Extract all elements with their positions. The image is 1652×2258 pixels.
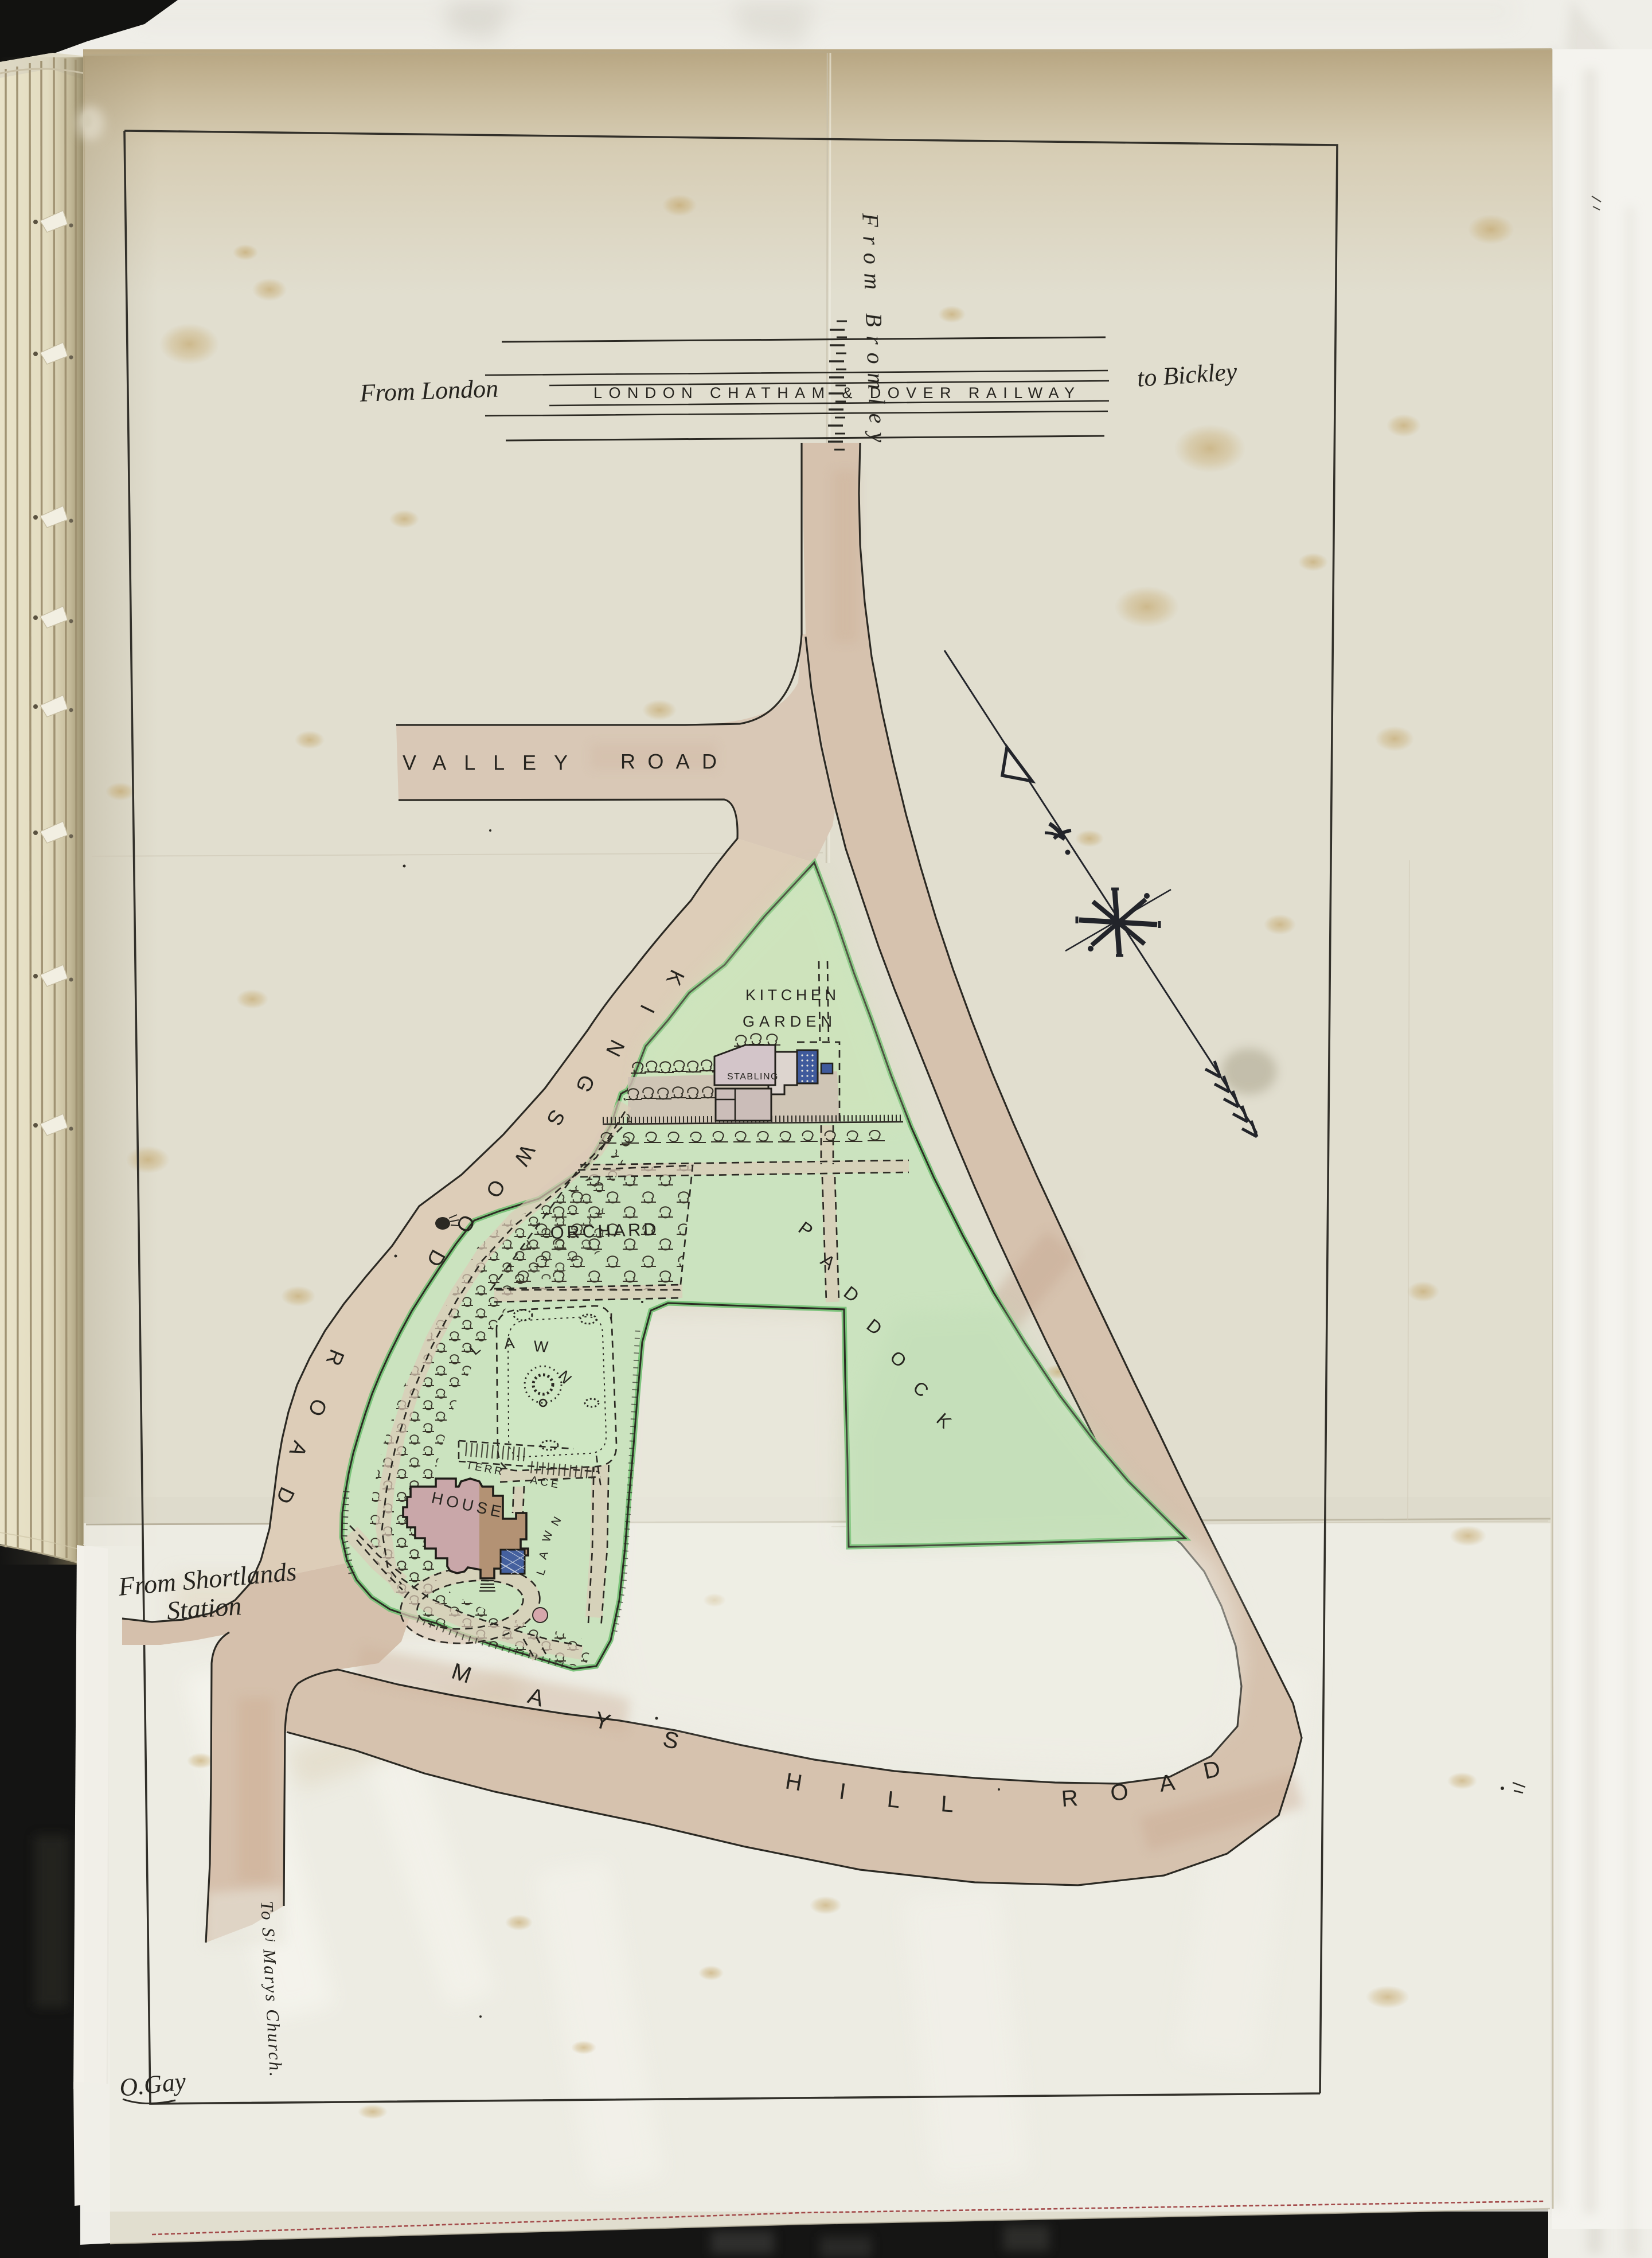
svg-text:O: O — [1109, 1779, 1130, 1806]
svg-text:ORCHARD: ORCHARD — [550, 1219, 663, 1243]
svg-text:From London: From London — [359, 375, 499, 407]
svg-text:GARDEN: GARDEN — [743, 1013, 839, 1030]
svg-text:R: R — [1061, 1785, 1079, 1812]
svg-text:A: A — [503, 1334, 515, 1352]
svg-text:L: L — [940, 1791, 954, 1817]
svg-text:STABLING: STABLING — [727, 1072, 779, 1082]
svg-text:L: L — [886, 1787, 901, 1813]
svg-text:KITCHEN: KITCHEN — [745, 986, 843, 1004]
svg-text:ROAD: ROAD — [620, 750, 729, 773]
svg-text:Station: Station — [166, 1591, 243, 1625]
svg-text:LONDON CHATHAM & DOVER RAILWAY: LONDON CHATHAM & DOVER RAILWAY — [593, 384, 1079, 401]
svg-text:W: W — [533, 1337, 549, 1356]
